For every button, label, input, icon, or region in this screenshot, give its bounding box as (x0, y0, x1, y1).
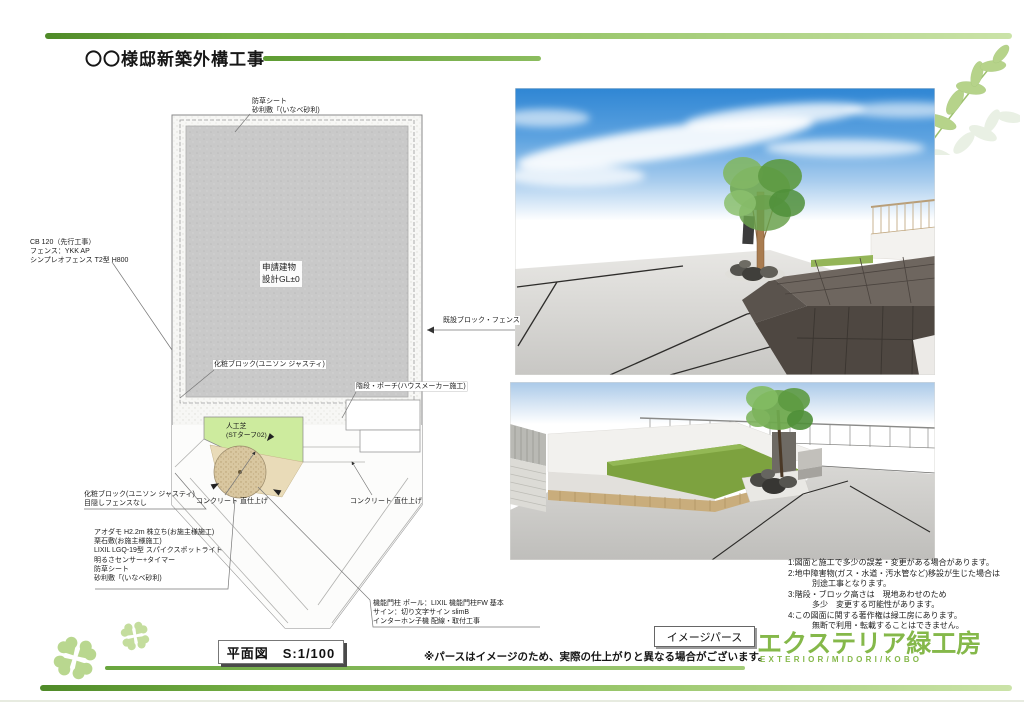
note-line: 2:地中障害物(ガス・水道・汚水管など)移設が生じた場合は (788, 569, 1000, 580)
label-gate-pillar: 機能門柱 ポール：LIXIL 機能門柱FW 基本 サイン：切り文字サイン sli… (373, 599, 504, 627)
footer-short-green-rule (105, 666, 745, 670)
image-perspective-box: イメージパース (654, 626, 755, 647)
plan-scale-box: 平面図 S:1/100 (218, 640, 344, 664)
perspective-image-aerial (510, 382, 935, 560)
sky (510, 382, 935, 424)
note-line: 別途工事となります。 (788, 579, 1000, 590)
existing-fence-arrow (427, 327, 434, 334)
bottom-green-rule (40, 685, 1012, 691)
note-line: 4:この図面に関する著作権は緑工房にあります。 (788, 611, 1000, 622)
title-green-rule (263, 56, 541, 61)
note-line: 1:図面と施工で多少の誤差・変更がある場合があります。 (788, 558, 1000, 569)
label-deco-block-inner: 化粧ブロック(ユニソン ジャスティ) (213, 360, 326, 369)
note-line: 多少 変更する可能性があります。 (788, 600, 1000, 611)
note-line: 3:階段・ブロック高さは 現地あわせのため (788, 590, 1000, 601)
label-stairs-porch: 階段・ポーチ(ハウスメーカー施工) (355, 382, 467, 391)
label-concrete-right: コンクリート 直仕上げ (350, 497, 422, 506)
perspective-caption: ※パースはイメージのため、実際の仕上がりと異なる場合がございます。 (424, 649, 768, 664)
dark-panel (772, 432, 796, 476)
drawing-sheet: { "title": "〇〇様邸新築外構工事", "colors": { "ac… (0, 0, 1024, 724)
perspective-image-front (515, 88, 935, 375)
label-turf: 人工芝 (STターフ02) (226, 423, 267, 441)
company-logo-sub: EXTERIOR/MIDORI/KOBO (760, 655, 922, 664)
label-building: 申請建物 設計GL±0 (260, 261, 302, 287)
label-deco-block-left: 化粧ブロック(ユニソン ジャスティ) 目隠しフェンスなし (84, 490, 195, 508)
page-title: 〇〇様邸新築外構工事 (85, 45, 265, 70)
side-steps (798, 448, 822, 480)
label-weed-sheet: 防草シート 砂利敷「(いなべ砂利) (252, 97, 320, 115)
label-existing-fence: 既設ブロック・フェンス (443, 316, 520, 325)
label-tree-spec: アオダモ H2.2m 株立ち(お施主様施工) 栗石敷(お施主様施工) LIXIL… (94, 528, 223, 583)
top-green-rule (45, 33, 1012, 39)
label-concrete-left: コンクリート 直仕上げ (196, 497, 268, 506)
clover-decoration-icon (30, 608, 180, 703)
notes-block: 1:図面と施工で多少の誤差・変更がある場合があります。 2:地中障害物(ガス・水… (788, 558, 1000, 632)
existing-wall (510, 424, 546, 512)
label-cb-fence: CB 120（先行工事） フェンス：YKK AP シンプレオフェンス T2型 H… (30, 238, 128, 266)
